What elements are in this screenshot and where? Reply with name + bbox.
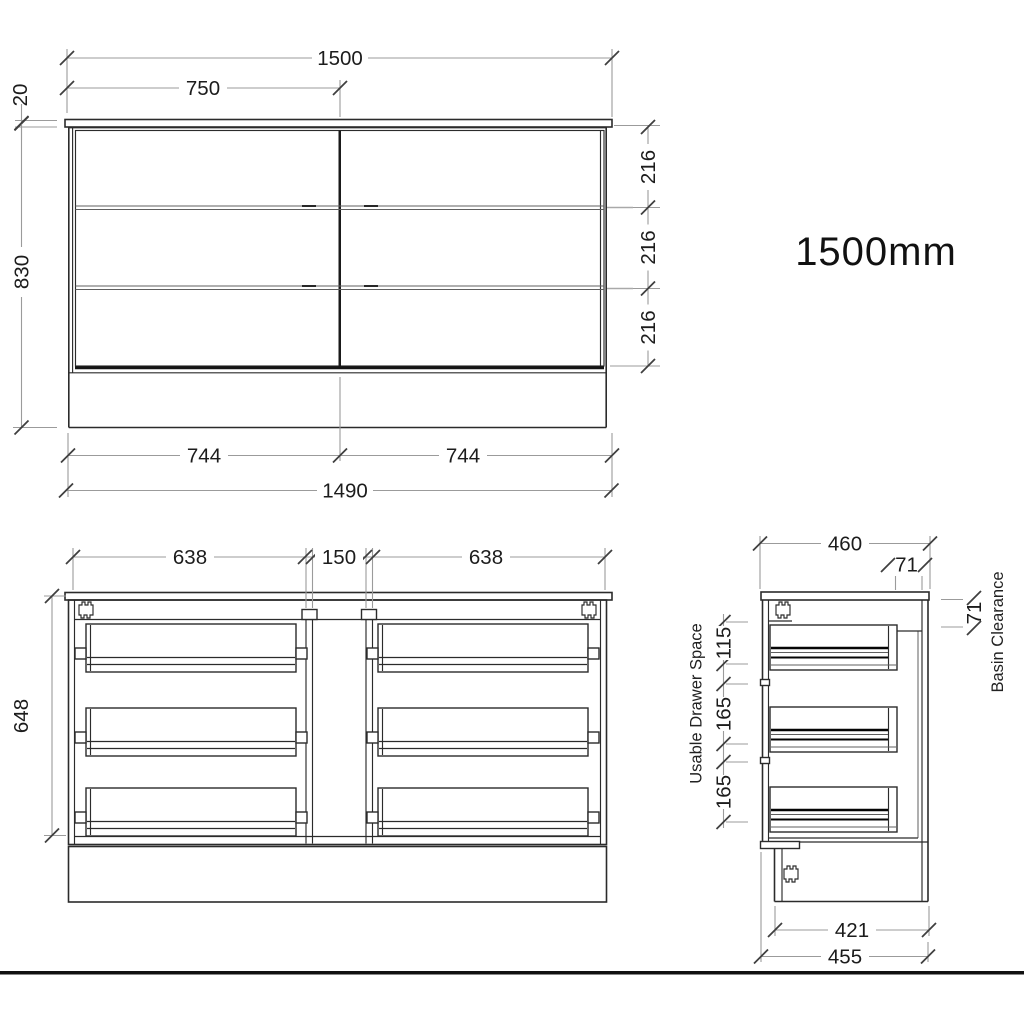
dim-height: 830 — [11, 255, 34, 289]
dim-depth: 460 — [828, 533, 862, 556]
dim-basin-clearance: 71 — [963, 602, 986, 625]
kickboard — [69, 847, 607, 903]
size-title: 1500mm — [795, 230, 957, 274]
dim-center-gap: 150 — [322, 546, 356, 569]
dim-drawer-height-3: 216 — [637, 310, 660, 344]
dim-left-drawer-width: 638 — [173, 546, 207, 569]
countertop — [65, 593, 612, 601]
internal-cabinet-outline — [65, 593, 612, 903]
dim-drawer-height-2: 216 — [637, 230, 660, 264]
dim-top-thickness: 20 — [9, 84, 32, 107]
technical-drawing: 1500 750 20 830 — [0, 0, 1024, 1024]
front-dimensions: 1500 750 20 830 — [9, 47, 660, 503]
dim-drawer-depth-3: 165 — [713, 775, 736, 809]
drawer-box — [367, 624, 599, 672]
dim-drawer-depth-2: 165 — [713, 697, 736, 731]
drawer-side-profile — [770, 787, 897, 832]
footer-divider — [0, 971, 1024, 975]
dim-half-width: 750 — [186, 77, 220, 100]
side-section-view: 460 71 71 Basin Clearance 115 — [687, 533, 1007, 969]
drawer-box — [367, 708, 599, 756]
countertop — [65, 120, 612, 128]
dim-right-drawer-width: 638 — [469, 546, 503, 569]
countertop — [761, 592, 929, 600]
front-cabinet-outline — [65, 120, 633, 428]
dim-drawer-height-1: 216 — [637, 150, 660, 184]
drawer-box — [367, 788, 599, 836]
foot-plate — [761, 842, 800, 849]
clip-icon — [79, 602, 93, 618]
dim-inner-height: 648 — [10, 699, 33, 733]
clip-icon — [582, 602, 596, 618]
dim-drawer-width-2: 744 — [446, 445, 480, 468]
drawer-box — [75, 624, 307, 672]
dim-rear-offset: 71 — [895, 554, 918, 577]
dim-drawer-depth-1: 115 — [713, 627, 736, 660]
dim-drawer-width-1: 744 — [187, 445, 221, 468]
dim-overall-width: 1500 — [317, 47, 363, 70]
drawer-box — [75, 788, 307, 836]
basin-clearance-label: Basin Clearance — [989, 571, 1007, 692]
dim-carcass-width: 1490 — [322, 480, 368, 503]
usable-drawer-space-label: Usable Drawer Space — [687, 623, 705, 784]
drawer-box — [75, 708, 307, 756]
clip-icon — [776, 602, 790, 618]
dim-base-depth: 455 — [828, 946, 862, 969]
internal-front-view: 638 150 638 648 — [10, 546, 612, 902]
drawer-side-profile — [770, 707, 897, 752]
drawing-sheet: 1500 750 20 830 — [0, 0, 1024, 1024]
drawer-side-profile — [770, 625, 897, 670]
side-cabinet-outline — [761, 592, 930, 902]
front-elevation-view: 1500 750 20 830 — [9, 47, 660, 503]
dim-kickboard-depth: 421 — [835, 919, 869, 942]
center-pillars — [302, 610, 377, 844]
clip-icon — [784, 866, 798, 882]
